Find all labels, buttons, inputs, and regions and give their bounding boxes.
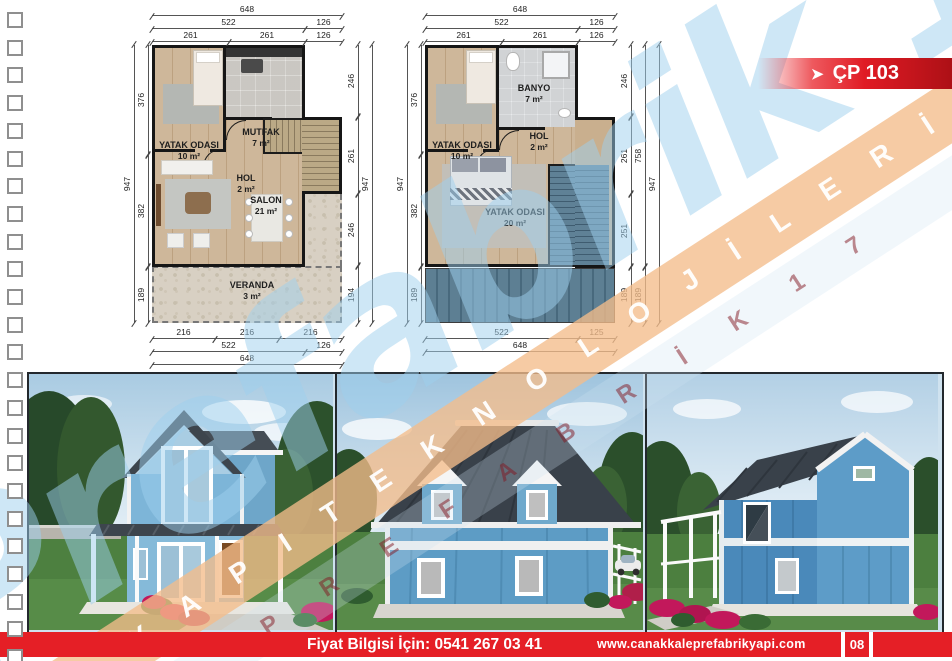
floor-plan-ground: VERANDA 3 m² (152, 45, 342, 323)
dim-p1-left-382: 382 (136, 155, 149, 267)
room-label-kitchen: MUTFAK 7 m² (230, 127, 292, 148)
dim-p2-left-376: 376 (409, 45, 422, 155)
dim-p1-bot-216b: 216 (215, 327, 279, 339)
dim-p2-right-total: 947 (647, 45, 660, 323)
dim-p1-right-246a: 246 (346, 45, 359, 117)
shower-illustration (542, 51, 570, 79)
stone-side-area (303, 194, 342, 266)
dim-p2-left-189: 189 (409, 267, 422, 323)
binding-square (7, 151, 23, 167)
binding-square (7, 621, 23, 637)
binding-square (7, 649, 23, 661)
dim-p1-top-126a: 126 (305, 17, 342, 29)
bed1-pillow (469, 52, 493, 63)
dim-p1-bot-126: 126 (305, 340, 342, 352)
binding-square (7, 538, 23, 554)
tv-unit (156, 184, 161, 226)
plan1-stair-bay (302, 117, 342, 194)
dim-p1-top-261b: 261 (229, 30, 305, 42)
wall-bedroom1-bath (496, 48, 499, 152)
footer-bar: Fiyat Bilgisi İçin: 0541 267 03 41 www.c… (0, 632, 952, 657)
binding-square (7, 123, 23, 139)
binding-square (7, 12, 23, 28)
stairs-inner-upper (548, 164, 578, 267)
binding-square (7, 95, 23, 111)
chair-3 (245, 230, 253, 238)
dim-p2-right-251: 251 (619, 194, 632, 267)
dim-p2-bot-total: 648 (425, 340, 615, 352)
dim-p1-bot-total: 648 (152, 353, 342, 365)
binding-square (7, 261, 23, 277)
dim-p1-left-total: 947 (122, 45, 135, 323)
dim-p2-left-total: 947 (395, 45, 408, 323)
dim-p1-top-126b: 126 (305, 30, 342, 42)
wall-bath-hall (499, 127, 545, 130)
dim-p2-top-261b: 261 (502, 30, 578, 42)
sink-illustration (558, 108, 571, 118)
model-code-banner: ➤ ÇP 103 (758, 58, 952, 89)
binding-square (7, 67, 23, 83)
dim-p1-right-194: 194 (346, 266, 359, 323)
dim-p1-bot-216c: 216 (279, 327, 342, 339)
dim-p2-right-246: 246 (619, 45, 632, 117)
room-label-hall: HOL 2 m² (228, 173, 264, 194)
dim-p2-top-126b: 126 (578, 30, 615, 42)
binding-square (7, 566, 23, 582)
page-number: 08 (847, 632, 867, 657)
catalog-page: 648 522 126 261 261 126 216 216 216 522 … (0, 0, 952, 661)
toilet-illustration (506, 52, 520, 71)
dim-p1-left-189: 189 (136, 267, 149, 323)
binding-square (7, 344, 23, 360)
dim-p1-bot-522: 522 (152, 340, 305, 352)
binding-square (7, 40, 23, 56)
binding-square (7, 455, 23, 471)
armchair-b (193, 233, 210, 248)
room-label-bedroom2: YATAK ODASI 20 m² (480, 207, 550, 228)
coffee-table (185, 192, 211, 214)
house-render-rear (647, 374, 938, 630)
dim-p2-top-126a: 126 (578, 17, 615, 29)
binding-square (7, 206, 23, 222)
dim-p2-right-189a: 189 (619, 267, 632, 323)
binding-square (7, 428, 23, 444)
house-render-front (29, 374, 333, 630)
binding-square (7, 594, 23, 610)
room-label-bedroom1: YATAK ODASI 10 m² (427, 140, 497, 161)
dim-p2-left-382: 382 (409, 155, 422, 267)
bed-pillow (196, 52, 220, 63)
footer-divider-left (841, 632, 845, 657)
dim-p2-right-189b: 189 (633, 267, 646, 323)
sofa-illustration (161, 160, 213, 175)
binding-square (7, 317, 23, 333)
house-render-side (337, 374, 643, 630)
room-label-hall-upper: HOL 2 m² (521, 131, 557, 152)
dim-p1-top-522: 522 (152, 17, 305, 29)
dim-p2-top-522: 522 (425, 17, 578, 29)
dim-p2-bot-125: 125 (578, 327, 615, 339)
binding-square (7, 289, 23, 305)
plan2-stair-bay (575, 117, 615, 268)
stairs-bay-upper (575, 165, 609, 265)
roof-band (425, 268, 615, 323)
model-code: ÇP 103 (833, 62, 899, 85)
dim-p1-top-total: 648 (152, 4, 342, 16)
room-label-bathroom: BANYO 7 m² (505, 83, 563, 104)
binding-square (7, 178, 23, 194)
kitchen-area (226, 48, 302, 120)
binding-square (7, 372, 23, 388)
dim-p2-top-261a: 261 (425, 30, 502, 42)
room-label-salon: SALON 21 m² (236, 195, 296, 216)
binding-square (7, 483, 23, 499)
room-label-bedroom: YATAK ODASI 10 m² (154, 140, 224, 161)
dim-p2-top-total: 648 (425, 4, 615, 16)
website-link[interactable]: www.canakkaleprefabrikyapi.com (597, 632, 806, 657)
binding-square (7, 400, 23, 416)
dim-p2-bot-522: 522 (425, 327, 578, 339)
bed2-throw (450, 188, 512, 200)
dim-p1-right-246b: 246 (346, 194, 359, 266)
room-label-veranda: VERANDA 3 m² (212, 280, 292, 301)
render-photo-front (27, 372, 339, 636)
chair-6 (285, 230, 293, 238)
dim-p1-bot-216a: 216 (152, 327, 215, 339)
dim-p2-right-261: 261 (619, 117, 632, 194)
binding-square (7, 511, 23, 527)
dim-p1-top-261a: 261 (152, 30, 229, 42)
armchair-a (167, 233, 184, 248)
price-phone-label: Fiyat Bilgisi İçin: 0541 267 03 41 (307, 632, 542, 657)
arrow-icon: ➤ (811, 65, 824, 83)
binding-square (7, 234, 23, 250)
render-photo-rear (645, 372, 944, 636)
render-photo-side (335, 372, 649, 636)
bath-door-arc (499, 130, 519, 150)
dim-p1-right-261: 261 (346, 117, 359, 194)
kitchen-counter (226, 48, 302, 57)
footer-divider-right (869, 632, 873, 657)
dim-p2-right-758: 758 (633, 45, 646, 267)
stove-illustration (241, 59, 263, 73)
dim-p1-left-376: 376 (136, 45, 149, 155)
dim-p1-right-total: 947 (360, 45, 373, 323)
floor-plan-upper: YATAK ODASI 10 m² BANYO 7 m² HOL 2 m² YA… (425, 45, 615, 323)
